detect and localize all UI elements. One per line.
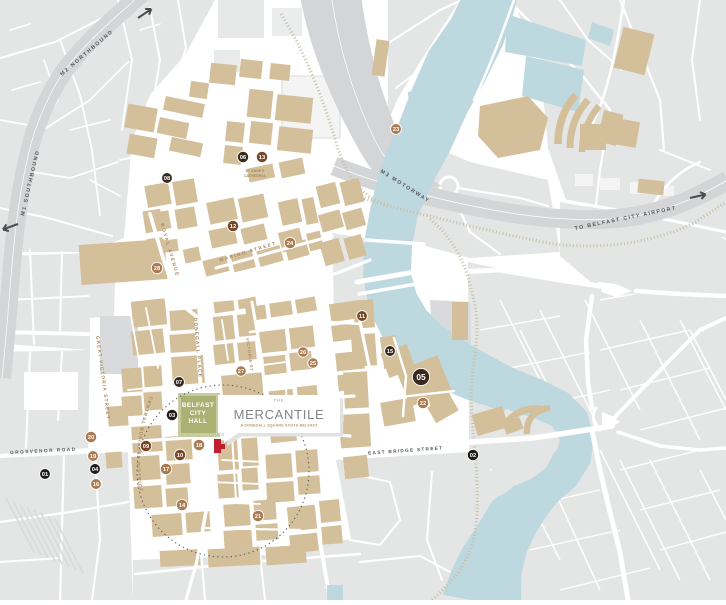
svg-text:CITY: CITY: [190, 410, 207, 417]
svg-text:BELFAST: BELFAST: [182, 402, 214, 409]
svg-text:ST ANNE'S: ST ANNE'S: [246, 169, 265, 173]
svg-text:04: 04: [92, 467, 99, 473]
svg-text:03: 03: [169, 413, 176, 419]
svg-text:08: 08: [164, 176, 171, 182]
svg-text:CATHEDRAL: CATHEDRAL: [244, 174, 267, 178]
svg-text:23: 23: [393, 127, 400, 133]
svg-text:26: 26: [300, 350, 307, 356]
svg-text:12: 12: [230, 224, 236, 230]
svg-text:28: 28: [154, 266, 161, 272]
svg-text:21: 21: [255, 514, 262, 520]
svg-text:MERCANTILE: MERCANTILE: [234, 407, 325, 422]
svg-text:11: 11: [359, 314, 366, 320]
svg-text:13: 13: [259, 155, 266, 161]
svg-text:01: 01: [42, 472, 49, 478]
svg-text:02: 02: [470, 453, 476, 459]
svg-text:16: 16: [93, 482, 100, 488]
svg-text:15: 15: [387, 349, 394, 355]
svg-text:22: 22: [420, 401, 426, 407]
svg-text:19: 19: [90, 454, 97, 460]
svg-text:18: 18: [196, 443, 203, 449]
svg-text:09: 09: [143, 444, 150, 450]
svg-text:25: 25: [310, 361, 317, 367]
svg-text:07: 07: [176, 380, 182, 386]
svg-text:17: 17: [163, 467, 169, 473]
svg-text:14: 14: [179, 503, 186, 509]
svg-text:05: 05: [416, 372, 426, 382]
svg-text:27: 27: [238, 369, 244, 375]
svg-text:THE: THE: [274, 398, 284, 403]
svg-text:A DONEGALL SQUARE SOUTH BELFAS: A DONEGALL SQUARE SOUTH BELFAST: [240, 424, 318, 428]
svg-text:24: 24: [287, 241, 294, 247]
svg-text:HALL: HALL: [189, 418, 208, 425]
svg-text:10: 10: [177, 453, 183, 459]
svg-text:20: 20: [88, 435, 94, 441]
svg-text:06: 06: [240, 155, 247, 161]
